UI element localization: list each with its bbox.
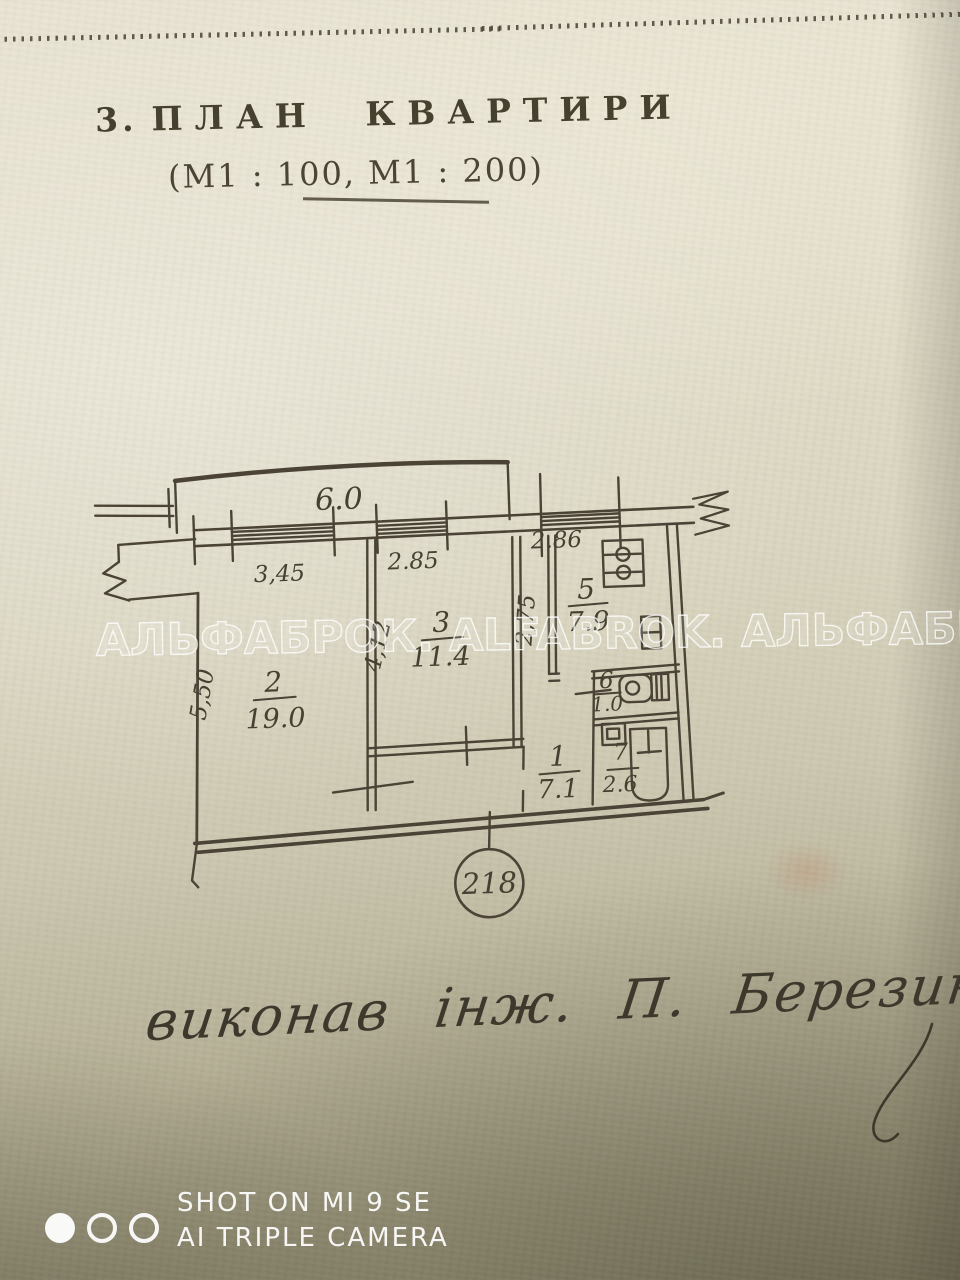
room5-number: 5 [577,572,596,606]
camera-dot-filled-icon [45,1213,75,1243]
floor-plan: 6.0 3,45 2.85 2.86 5,50 4,12 2,75 2 19.0… [88,448,778,963]
room1-number: 1 [548,739,567,773]
dim-window-left: 3,45 [253,560,305,588]
room7-number: 7 [613,739,629,766]
perforation-line-left [0,26,501,42]
stove-icon [602,540,644,587]
right-wall [667,525,694,799]
room6-area: 1.0 [591,691,624,716]
wall-break-zigzag-right [693,492,729,535]
section-title-text: ПЛАН КВАРТИРИ [151,87,683,138]
room2-area: 19.0 [245,702,306,735]
wall-room3-hall [368,725,526,816]
camera-dot-ring2-icon [129,1213,159,1243]
scale-underline [303,197,489,204]
camera-dot-ring-icon [87,1213,117,1243]
room5-area: 7.9 [566,606,610,638]
room2-number: 2 [263,665,283,699]
balcony-length-label: 6.0 [314,481,363,518]
floor-plan-drawing: 6.0 3,45 2.85 2.86 5,50 4,12 2,75 2 19.0… [88,448,778,963]
balcony-outline [175,460,508,481]
dim-kitchen-depth: 2,75 [511,594,541,648]
toilet-icon [619,674,669,703]
dim-window-mid: 2.85 [386,548,439,576]
room3-number: 3 [432,605,451,639]
dim-kitchen-width: 2.86 [529,527,582,555]
room7-area: 2.6 [601,772,638,798]
bottom-wall [194,793,725,852]
room3-area: 11.4 [410,641,471,674]
camera-watermark-line1: SHOT ON MI 9 SE [177,1186,449,1221]
apartment-number: 218 [460,865,518,901]
vent-shaft-icon [641,616,661,649]
wall-room2-room3 [324,539,413,812]
handwritten-signature: виконав інж. П. Березин [142,954,949,1054]
scale-note: (М1 : 100, М1 : 200) [168,150,545,196]
wall-kitchen-hall [549,664,679,681]
section-number: 3. [95,100,138,140]
perforation-line-right [482,12,960,31]
left-wall-break [94,488,198,601]
window-room3 [376,501,448,552]
camera-watermark-line2: AI TRIPLE CAMERA [177,1221,449,1256]
signature-flourish [852,1018,942,1158]
room1-area: 7.1 [537,774,579,805]
dim-room3-depth: 4,12 [360,618,397,675]
dim-room2-depth: 5,50 [185,667,219,722]
camera-lens-dots [45,1213,159,1243]
camera-watermark: SHOT ON MI 9 SE AI TRIPLE CAMERA [45,1186,449,1256]
section-title: 3.ПЛАН КВАРТИРИ [95,87,683,139]
room6-number: 6 [599,668,615,694]
